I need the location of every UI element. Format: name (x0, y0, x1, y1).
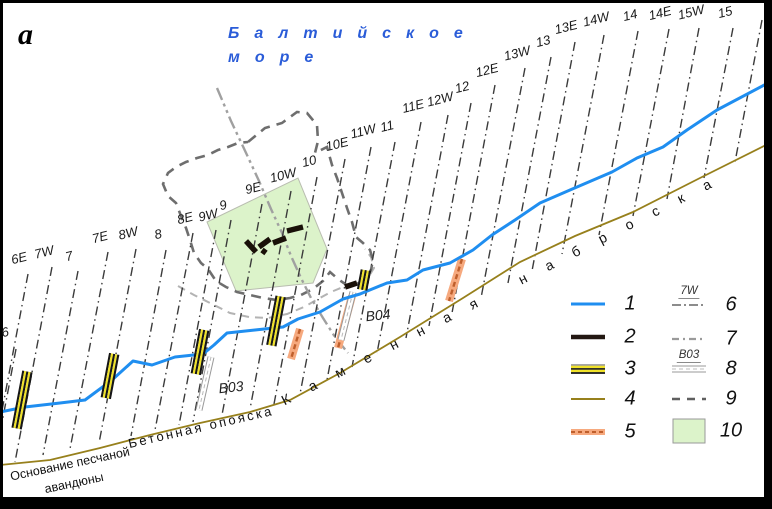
profile-line-7 (43, 271, 78, 455)
profile-line-7E (70, 252, 108, 449)
black-dash-6 (345, 283, 357, 287)
profile-line-13 (508, 57, 551, 283)
frame-border-2 (764, 0, 772, 509)
legend-number-2: 2 (624, 326, 635, 349)
study-area-polygon (207, 178, 327, 291)
frame-border-0 (0, 0, 772, 3)
profile-line-11W (327, 147, 371, 380)
orange-band-3 (449, 259, 462, 301)
borehole-label-B04: B04 (365, 306, 391, 325)
profile-line-15W (667, 28, 699, 199)
profile-line-14W (562, 35, 604, 254)
map-figure: a Балтийское море 66E7W77E8W88E9W99E10W1… (0, 0, 772, 509)
profile-line-14 (599, 31, 638, 235)
profile-line-8 (131, 250, 166, 436)
frame-border-3 (0, 497, 772, 509)
black-dash-3 (262, 250, 266, 253)
sea-title: Балтийское море (228, 22, 478, 70)
borehole-label-B03: B03 (218, 378, 244, 397)
map-canvas (0, 0, 772, 509)
profile-line-8W (99, 249, 136, 443)
legend-sublabel-7W: 7W (678, 285, 699, 299)
legend-number-6: 6 (725, 294, 736, 317)
legend-swatch-green-area (673, 419, 705, 443)
legend-number-3: 3 (624, 358, 635, 381)
figure-label: a (18, 18, 33, 52)
profile-line-11 (352, 142, 395, 367)
black-dash-5 (287, 227, 303, 231)
frame-border-1 (0, 0, 3, 509)
legend-sublabel-B03: B03 (677, 349, 701, 363)
legend-number-4: 4 (624, 388, 635, 411)
legend-number-5: 5 (624, 421, 635, 444)
legend-number-10: 10 (720, 420, 742, 443)
profile-line-8E (155, 233, 193, 430)
profile-line-7W (15, 267, 52, 462)
legend-number-9: 9 (725, 388, 736, 411)
sea-title-line2: море (228, 46, 478, 70)
profile-line-x (735, 20, 762, 162)
legend-number-1: 1 (624, 293, 635, 316)
legend-number-8: 8 (725, 358, 736, 381)
profile-line-14E (633, 29, 669, 216)
sea-title-line1: Балтийское (228, 22, 478, 46)
profile-line-12W (406, 115, 448, 338)
legend-number-7: 7 (725, 328, 736, 351)
profile-line-13E (532, 42, 575, 271)
